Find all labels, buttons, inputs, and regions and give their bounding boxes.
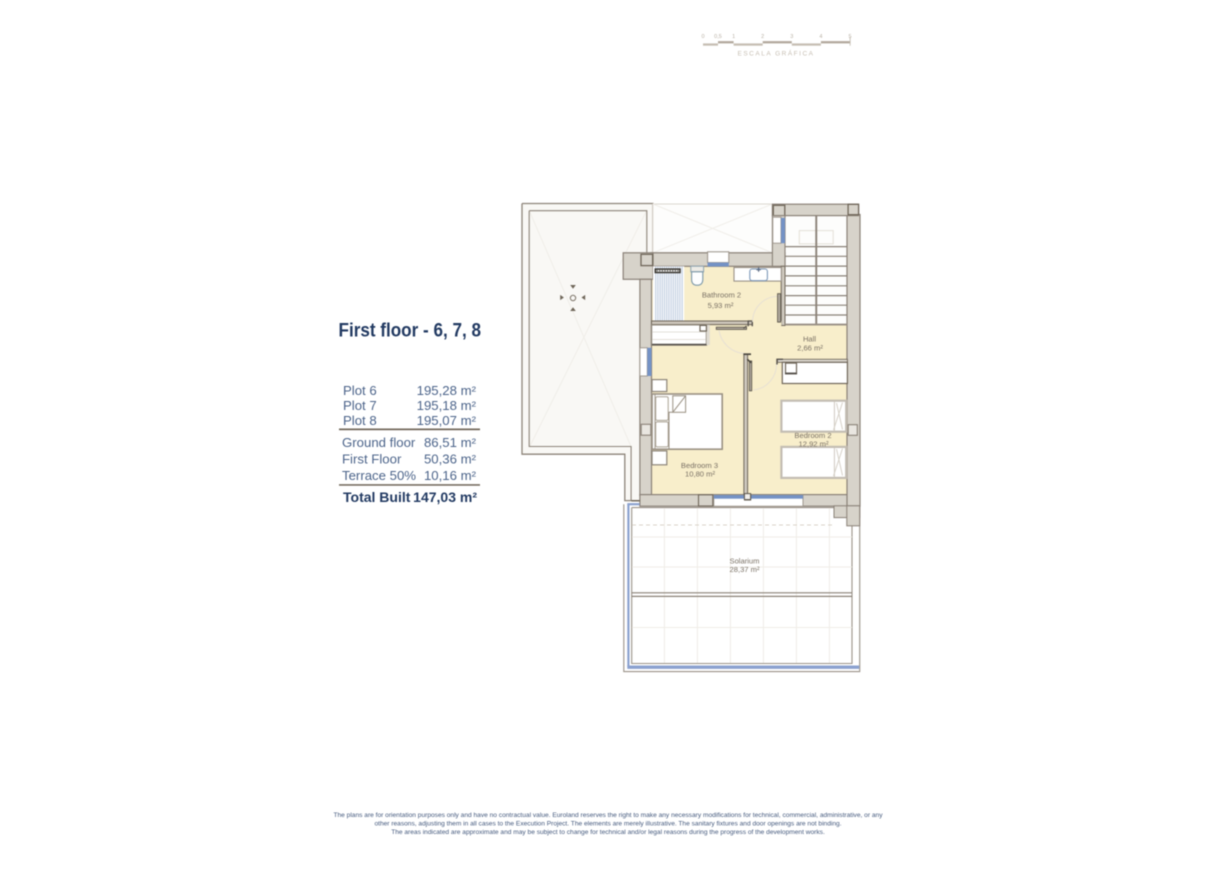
svg-text:195,18 m²: 195,18 m² xyxy=(417,398,477,413)
svg-text:ESCALA GRÁFICA: ESCALA GRÁFICA xyxy=(738,49,815,58)
svg-text:First floor - 6, 7, 8: First floor - 6, 7, 8 xyxy=(339,321,482,342)
svg-text:First Floor: First Floor xyxy=(342,452,402,467)
svg-text:2,66 m²: 2,66 m² xyxy=(797,344,823,353)
svg-text:other reasons, adjusting them: other reasons, adjusting them in all cas… xyxy=(374,821,841,828)
svg-text:Plot 8: Plot 8 xyxy=(343,413,377,428)
svg-text:12,92 m²: 12,92 m² xyxy=(799,439,829,448)
svg-text:Bathroom 2: Bathroom 2 xyxy=(702,291,741,300)
svg-text:3: 3 xyxy=(790,34,793,40)
svg-text:Hall: Hall xyxy=(803,335,816,344)
svg-text:28,37 m²: 28,37 m² xyxy=(730,565,760,574)
svg-text:Ground floor: Ground floor xyxy=(342,435,416,450)
svg-text:147,03 m²: 147,03 m² xyxy=(413,489,477,505)
svg-text:Total Built: Total Built xyxy=(343,489,411,505)
svg-text:Plot 7: Plot 7 xyxy=(343,398,377,413)
svg-text:4: 4 xyxy=(819,34,822,40)
svg-text:1: 1 xyxy=(732,34,735,40)
svg-text:195,07 m²: 195,07 m² xyxy=(417,413,477,428)
svg-text:195,28 m²: 195,28 m² xyxy=(417,383,477,398)
svg-text:10,16 m²: 10,16 m² xyxy=(424,468,477,483)
svg-text:Terrace 50%: Terrace 50% xyxy=(342,468,416,483)
svg-text:The areas indicated are approx: The areas indicated are approximate and … xyxy=(391,829,825,836)
svg-text:5: 5 xyxy=(848,34,851,40)
svg-text:10,80 m²: 10,80 m² xyxy=(685,470,715,479)
svg-text:5,93 m²: 5,93 m² xyxy=(708,301,734,310)
svg-text:0: 0 xyxy=(701,34,704,40)
svg-text:The plans are for orientation: The plans are for orientation purposes o… xyxy=(333,812,883,819)
svg-text:2: 2 xyxy=(761,34,764,40)
svg-text:50,36 m²: 50,36 m² xyxy=(424,452,477,467)
svg-text:86,51 m²: 86,51 m² xyxy=(424,435,477,450)
svg-text:Plot 6: Plot 6 xyxy=(343,383,377,398)
svg-text:0,5: 0,5 xyxy=(714,34,722,40)
